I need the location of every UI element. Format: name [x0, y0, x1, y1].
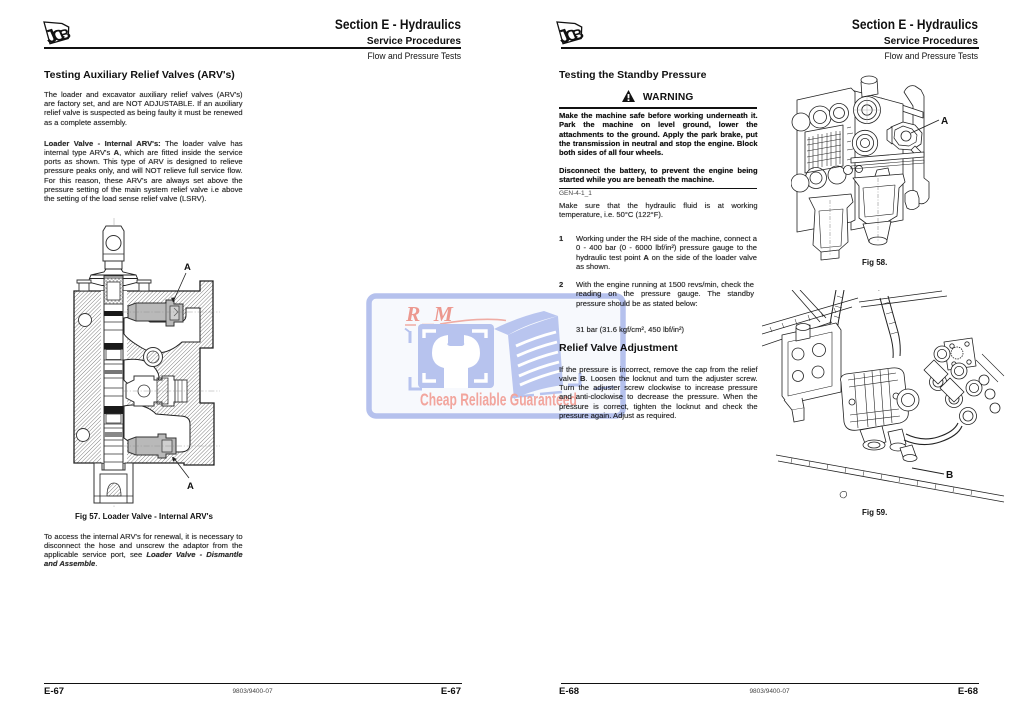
svg-text:R M: R M	[405, 302, 457, 326]
svg-text:B: B	[946, 470, 953, 481]
svg-text:A: A	[941, 116, 948, 127]
svg-text:A: A	[184, 262, 191, 273]
svg-text:Cheap Reliable Guaranteed: Cheap Reliable Guaranteed	[420, 390, 577, 410]
svg-text:A: A	[187, 481, 194, 492]
